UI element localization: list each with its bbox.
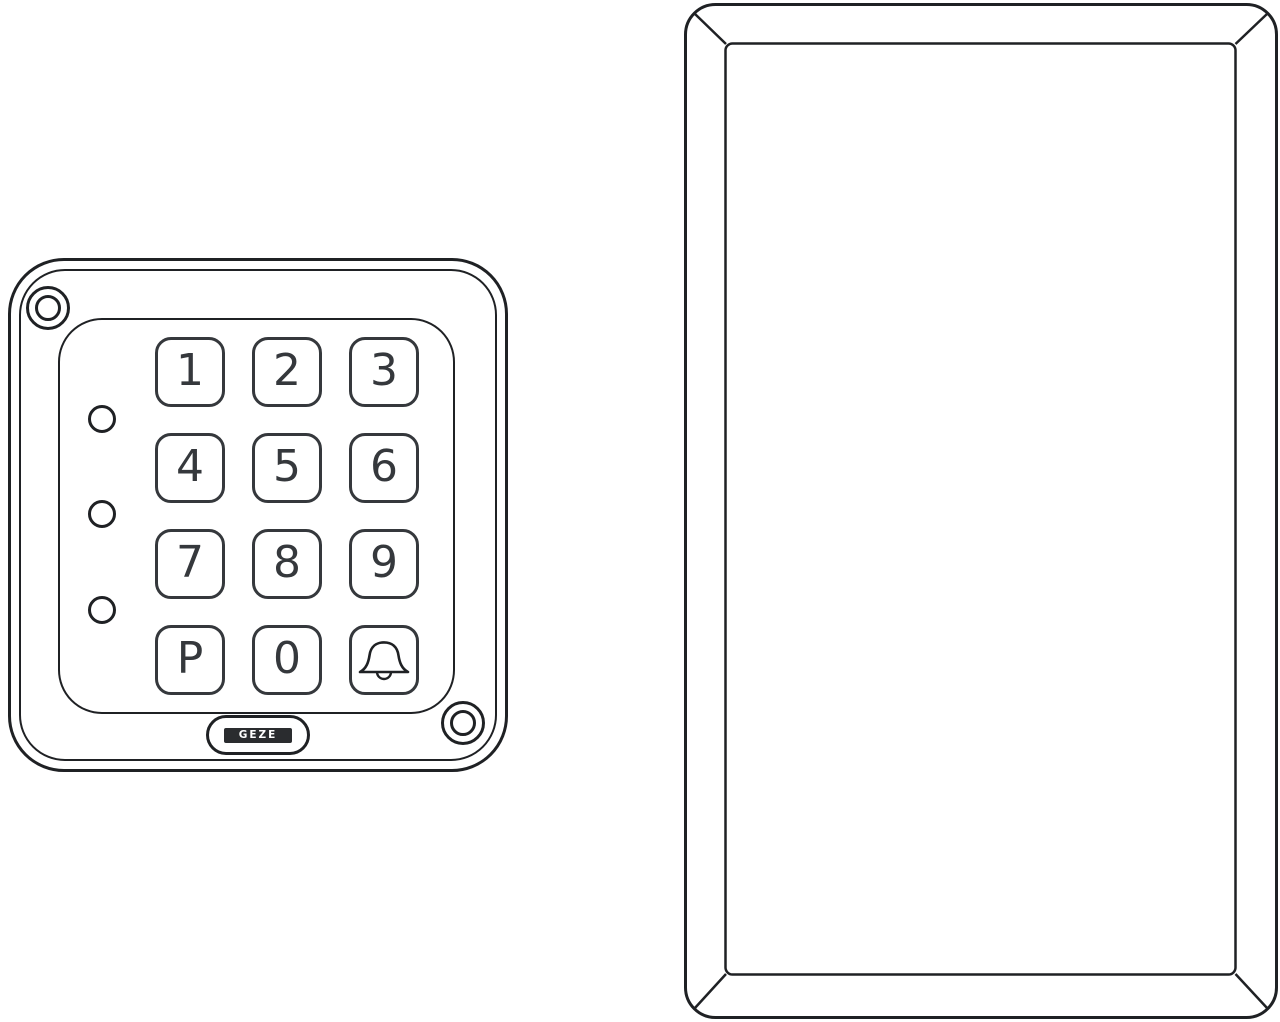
cover-plate-bevel-top-right bbox=[1236, 14, 1268, 45]
brand-badge: GEZE bbox=[206, 715, 310, 755]
cover-plate-bevel-bottom-left bbox=[695, 974, 727, 1009]
cover-plate-bevel-top-left bbox=[695, 14, 727, 45]
cover-plate-bevel-bottom-right bbox=[1236, 974, 1268, 1009]
cover-plate-drawing bbox=[0, 0, 1280, 1022]
cover-plate-outer-edge bbox=[686, 5, 1277, 1018]
cover-plate-inner-face bbox=[726, 44, 1236, 975]
brand-logo: GEZE bbox=[224, 728, 292, 743]
illustration-canvas: 1 2 3 4 5 6 7 8 9 P 0 bbox=[0, 0, 1280, 1022]
